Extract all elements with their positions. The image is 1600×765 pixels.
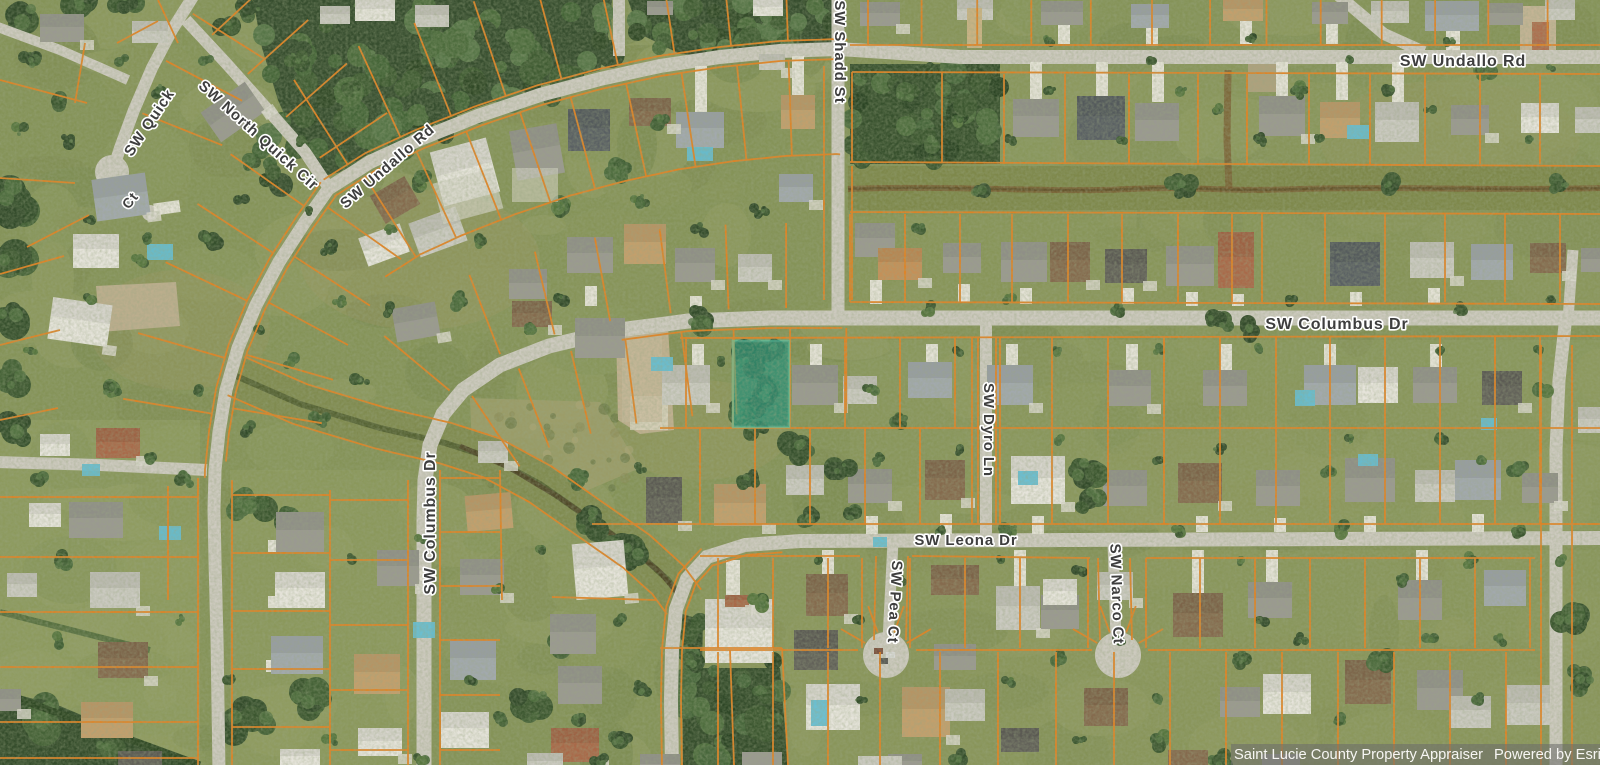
svg-text:SW Shadd St: SW Shadd St — [831, 0, 848, 103]
svg-text:SW Columbus Dr: SW Columbus Dr — [1265, 316, 1408, 333]
svg-text:SW Dyro Ln: SW Dyro Ln — [980, 383, 997, 477]
svg-text:Powered by Esri: Powered by Esri — [1494, 747, 1600, 763]
svg-text:SW Leona Dr: SW Leona Dr — [914, 532, 1017, 549]
svg-text:SW Columbus Dr: SW Columbus Dr — [422, 451, 439, 594]
svg-text:SW Undallo Rd: SW Undallo Rd — [1400, 53, 1526, 70]
svg-text:Saint Lucie County Property Ap: Saint Lucie County Property Appraiser — [1234, 747, 1483, 763]
svg-text:SW Narco Ct: SW Narco Ct — [1106, 543, 1127, 644]
